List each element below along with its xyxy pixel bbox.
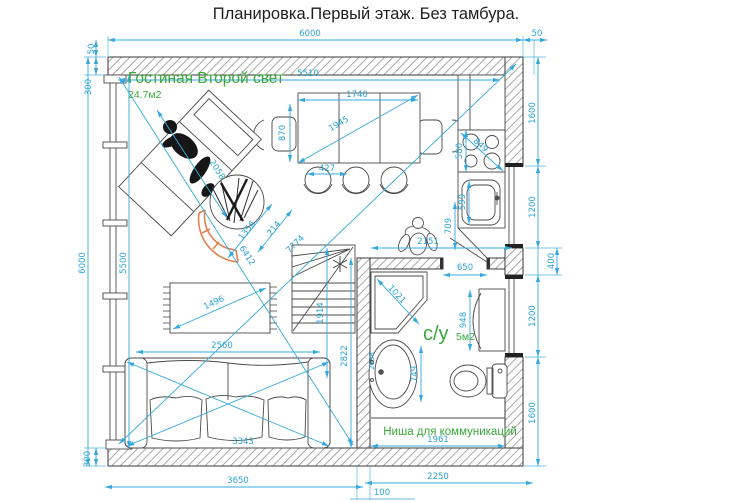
window-sill-icon xyxy=(505,244,523,248)
right-wall-top xyxy=(505,57,523,166)
dim-kitchen-width: 2151 xyxy=(417,237,439,247)
dim-sofa-diag: 3343 xyxy=(232,437,254,447)
dim-sofa-width: 2560 xyxy=(211,341,233,351)
dim-right-top: 1600 xyxy=(528,102,538,124)
toilet-icon xyxy=(450,364,507,398)
dim-room-diag-short: 6412 xyxy=(237,244,257,268)
dim-inner-width: 5510 xyxy=(297,69,319,79)
dim-top-width: 6000 xyxy=(299,29,321,39)
dim-right-window2: 1200 xyxy=(528,305,538,327)
dim-cabinet: 948 xyxy=(459,312,469,328)
dim-table-width: 1740 xyxy=(346,90,368,100)
page-title: Планировка.Первый этаж. Без тамбура. xyxy=(213,5,520,23)
dim-wall-thickness: 100 xyxy=(374,488,390,498)
dim-right-bottom: 1600 xyxy=(528,402,538,424)
dim-chair-width: 427 xyxy=(319,164,335,174)
dim-stove: 580 xyxy=(455,143,465,159)
dim-top-right-offset: 50 xyxy=(532,29,543,39)
door-leaf-icon xyxy=(450,238,487,262)
floor-plan-drawing: Планировка.Первый этаж. Без тамбура. xyxy=(0,0,732,502)
dim-left-top-wall: 300 xyxy=(84,79,94,95)
bathroom-area: 5м2 xyxy=(456,331,475,343)
dim-bath-wall: 2822 xyxy=(340,345,350,367)
dim-bath-door: 650 xyxy=(457,263,473,273)
living-room-label: Гостиная Второй свет xyxy=(128,70,284,87)
niche-label: Ниша для коммуникаций xyxy=(383,426,517,438)
dim-bottom-living: 3650 xyxy=(227,476,249,486)
chair-icon xyxy=(418,120,442,154)
bottom-wall xyxy=(108,448,523,466)
window-sill-icon xyxy=(505,163,523,167)
dim-right-pier: 400 xyxy=(547,253,557,269)
dim-bsink-offset: 2638 xyxy=(368,352,376,370)
dim-chair-left: 870 xyxy=(278,125,288,141)
bathroom-top-wall-left xyxy=(370,258,443,269)
mullion-icon xyxy=(103,293,127,299)
dim-plant2: 214 xyxy=(265,219,283,238)
right-wall-pier xyxy=(505,248,523,275)
mullion-icon xyxy=(103,220,127,226)
dim-bottom-left-wall: 300 xyxy=(83,451,93,467)
window-sill-icon xyxy=(505,353,523,357)
plant-icon xyxy=(210,175,264,229)
bathroom-label: с/у xyxy=(423,323,449,345)
bathroom-cabinet xyxy=(473,289,505,351)
dim-ksink: 599 xyxy=(458,194,468,210)
dining-table xyxy=(254,93,468,194)
window-sill-icon xyxy=(505,275,523,279)
mullion-icon xyxy=(103,142,127,148)
dim-stairs: 1914 xyxy=(316,302,326,324)
dim-left-inner-height: 5500 xyxy=(119,252,129,274)
dim-bottom-right: 2250 xyxy=(427,472,449,482)
dim-bsink: 749 xyxy=(410,366,420,382)
floor-plan-page: Планировка.Первый этаж. Без тамбура. xyxy=(0,0,732,502)
chair-icon xyxy=(343,167,369,193)
dim-right-window1: 1200 xyxy=(528,196,538,218)
dim-left-top-offset: 50 xyxy=(87,44,97,55)
mullion-icon xyxy=(103,366,127,372)
dim-left-height: 6000 xyxy=(78,252,88,274)
living-room-area: 24.7м2 xyxy=(128,89,162,101)
dim-person: 709 xyxy=(444,218,454,234)
